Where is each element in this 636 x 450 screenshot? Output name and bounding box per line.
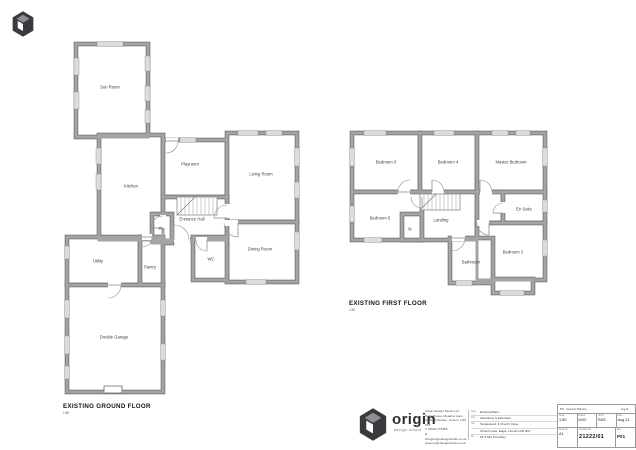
window bbox=[543, 240, 548, 256]
plan-ground: Sun RoomKitchenPlayroomLiving RoomEntran… bbox=[63, 42, 300, 416]
door-opening bbox=[480, 189, 492, 195]
door-opening bbox=[477, 220, 489, 226]
window bbox=[246, 280, 266, 285]
stairs bbox=[177, 197, 217, 215]
window bbox=[238, 131, 258, 136]
revision-row: P01 Issued for Planning Aug 21 bbox=[558, 405, 635, 414]
title-block: origin design studio Origin Design Studi… bbox=[355, 402, 635, 448]
window bbox=[65, 366, 70, 379]
project-info: Dwg Existing Plans Proj Alterations & Ex… bbox=[468, 410, 557, 440]
window bbox=[145, 56, 150, 71]
window bbox=[74, 92, 79, 109]
room-label-bathroom: Bathroom bbox=[462, 259, 481, 264]
room-label-bedroom-5: Bedroom 5 bbox=[370, 215, 391, 220]
drawing-sheet: Sun RoomKitchenPlayroomLiving RoomEntran… bbox=[0, 0, 636, 450]
room-playroom bbox=[163, 140, 227, 197]
room-label-kitchen: Kitchen bbox=[124, 183, 139, 188]
plan-title-ground: EXISTING GROUND FLOOR bbox=[63, 403, 151, 410]
origin-logo-cube-icon bbox=[359, 408, 387, 441]
window bbox=[161, 300, 166, 316]
door-opening bbox=[174, 237, 190, 243]
window bbox=[96, 148, 101, 164]
room-label-sun-room: Sun Room bbox=[100, 84, 120, 89]
window bbox=[543, 148, 548, 166]
window bbox=[434, 131, 454, 136]
plan-title-first: EXISTING FIRST FLOOR bbox=[349, 300, 427, 307]
window bbox=[516, 131, 530, 136]
room-label-landing: Landing bbox=[434, 217, 450, 222]
window bbox=[65, 246, 70, 259]
window bbox=[295, 232, 300, 250]
room-label-bedroom-2: Bedroom 2 bbox=[503, 249, 524, 254]
project-line: Clt Mr & Mrs M Godley bbox=[471, 435, 557, 440]
window bbox=[456, 281, 472, 286]
window bbox=[65, 300, 70, 318]
room-living-room bbox=[227, 133, 297, 222]
window bbox=[161, 344, 166, 360]
door-opening bbox=[500, 202, 506, 213]
room-label-entrance-hall: Entrance Hall bbox=[179, 216, 204, 221]
room-label-bedroom-4: Bedroom 4 bbox=[438, 159, 459, 164]
paper-field: Scale @ A1 bbox=[558, 428, 578, 448]
garage-door bbox=[104, 386, 122, 393]
window bbox=[97, 42, 123, 47]
window bbox=[543, 200, 548, 212]
floor-plan-canvas: Sun RoomKitchenPlayroomLiving RoomEntran… bbox=[0, 0, 636, 450]
window bbox=[500, 291, 524, 296]
room-fs bbox=[402, 214, 422, 240]
window bbox=[364, 238, 382, 243]
address-line: E info@origindesignstudio.co.uk bbox=[425, 432, 467, 441]
address-line: South Hykeham, Lincoln, LN6 9PF bbox=[425, 418, 467, 427]
field-row: Scale @ A1 Drawing No 21222/01 Rev P01 bbox=[558, 428, 635, 448]
studio-address: Origin Design Studio Ltd Holly House, Me… bbox=[425, 409, 467, 446]
window bbox=[96, 174, 101, 190]
window bbox=[145, 110, 150, 123]
room-space bbox=[477, 192, 503, 223]
room-label-living-room: Living Room bbox=[249, 171, 273, 176]
drawing-number-field: Drawing No 21222/01 bbox=[578, 428, 616, 448]
window bbox=[295, 182, 300, 198]
window bbox=[295, 148, 300, 166]
window bbox=[364, 131, 386, 136]
room-label-wc: WC bbox=[208, 256, 215, 261]
room-label-en-suite: En Suite bbox=[516, 206, 533, 211]
room-label-pantry: Pantry bbox=[144, 264, 157, 269]
plan-scale-first: 1:50 bbox=[349, 308, 355, 312]
door-opening bbox=[196, 237, 207, 243]
origin-cube-mark bbox=[12, 11, 34, 37]
window bbox=[180, 138, 196, 143]
room-dining-room bbox=[227, 222, 297, 282]
drawn-field: Drawn MJG bbox=[578, 414, 598, 427]
window bbox=[492, 131, 508, 136]
scale-field: Scale 1:50 bbox=[558, 414, 578, 427]
field-row: Scale 1:50 Drawn MJG Chkd RAS Date Aug 2… bbox=[558, 414, 635, 428]
room-utility bbox=[67, 237, 140, 285]
date-field: Date Aug 21 bbox=[617, 414, 636, 427]
logo-tagline: design studio bbox=[394, 428, 422, 432]
room-label-dining-room: Dining Room bbox=[248, 246, 273, 251]
window bbox=[350, 206, 355, 222]
window bbox=[350, 148, 355, 166]
window bbox=[74, 58, 79, 75]
room-label-double-garage: Double Garage bbox=[100, 334, 129, 339]
door-opening bbox=[224, 204, 230, 218]
room-label-utility: Utility bbox=[93, 258, 104, 263]
window bbox=[65, 336, 70, 354]
stairs bbox=[420, 194, 460, 210]
room-label-fs: fs bbox=[408, 226, 411, 231]
room-sun-room bbox=[76, 44, 148, 137]
plan-scale-ground: 1:50 bbox=[63, 411, 69, 415]
room-label-playroom: Playroom bbox=[181, 161, 199, 166]
window bbox=[145, 86, 150, 101]
door-opening bbox=[223, 220, 238, 226]
window bbox=[266, 131, 282, 136]
room-label-master-bedroom: Master Bedroom bbox=[496, 159, 527, 164]
drawing-fields: P01 Issued for Planning Aug 21 Scale 1:5… bbox=[557, 404, 636, 448]
plan-first: Bedroom 3Bedroom 4Master BedroomBedroom … bbox=[349, 131, 548, 313]
revision-field: Rev P01 bbox=[616, 428, 635, 448]
address-line: www.origindesignstudio.co.uk bbox=[425, 441, 467, 446]
room-label-bedroom-3: Bedroom 3 bbox=[376, 159, 397, 164]
checked-field: Chkd RAS bbox=[597, 414, 617, 427]
